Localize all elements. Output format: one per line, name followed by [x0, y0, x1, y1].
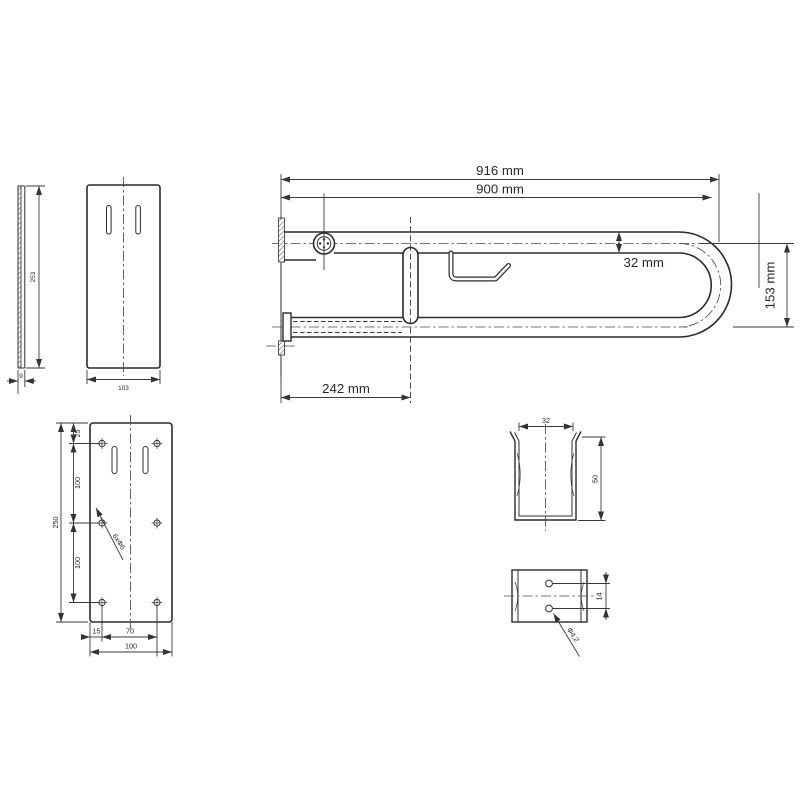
baseplate-hole-gap-lower-label: 100 [73, 557, 82, 569]
baseplate-hole-gap-upper-label: 100 [73, 477, 82, 489]
clip-hole-top [546, 580, 553, 587]
grab-bar-drawing: 253 9 103 [0, 0, 800, 799]
cover-width-label: 103 [118, 385, 129, 392]
technical-drawing-canvas: 253 9 103 [0, 0, 800, 799]
clip-hole-spacing-label: 14 [595, 593, 604, 601]
baseplate-width-label: 100 [125, 642, 137, 651]
clip-front-view: 14 Φ4,2 [504, 570, 610, 657]
dim-cover-thickness: 9 [7, 370, 36, 394]
u-bend-inner [679, 253, 711, 318]
baseplate-height-label: 250 [51, 517, 60, 529]
baseplate-front-view: 25 100 100 250 15 70 100 6xΦ6 [51, 415, 172, 657]
clip-width-label: 32 [542, 416, 550, 425]
tube-spacing-label: 153 mm [763, 262, 778, 310]
dim-900: 900 mm [281, 182, 712, 198]
mount-length-label: 900 mm [476, 182, 524, 197]
clip-top-view: 32 50 [510, 416, 606, 531]
grab-bar-main-view: 916 mm 900 mm 32 mm 153 mm 242 mm [266, 163, 794, 403]
baseplate-top-margin-label: 25 [73, 430, 82, 438]
lower-flange [283, 313, 291, 341]
wall-anchor-upper [279, 218, 285, 262]
pivot-offset-label: 242 mm [322, 381, 370, 396]
toilet-roll-holder [451, 253, 509, 279]
cover-thickness-label: 9 [19, 373, 23, 380]
dim-clip-width: 32 [519, 416, 573, 431]
tube-diameter-label: 32 mm [624, 255, 664, 270]
u-bend-outer [679, 232, 732, 337]
baseplate-hole-span-label: 70 [126, 627, 134, 636]
overall-length-label: 916 mm [476, 163, 524, 178]
clip-hole-bottom [546, 605, 553, 612]
dim-32: 32 mm [619, 232, 664, 270]
dim-916: 916 mm [281, 163, 719, 242]
cover-side-view: 253 9 [7, 186, 45, 394]
clip-hole-diameter-label: Φ4,2 [565, 626, 581, 644]
clip-depth-label: 50 [591, 475, 600, 483]
dim-153: 153 mm [700, 193, 794, 327]
bend-centerline [679, 244, 721, 328]
dim-cover-width: 103 [87, 370, 160, 392]
cover-height-label: 253 [30, 271, 37, 282]
dim-242: 242 mm [281, 377, 411, 403]
dim-clip-depth: 50 [578, 437, 606, 521]
baseplate-left-margin-label: 15 [93, 627, 101, 636]
cover-front-view: 103 [87, 177, 160, 392]
wall-anchor-lower [279, 341, 285, 355]
dim-cover-height: 253 [26, 186, 45, 368]
